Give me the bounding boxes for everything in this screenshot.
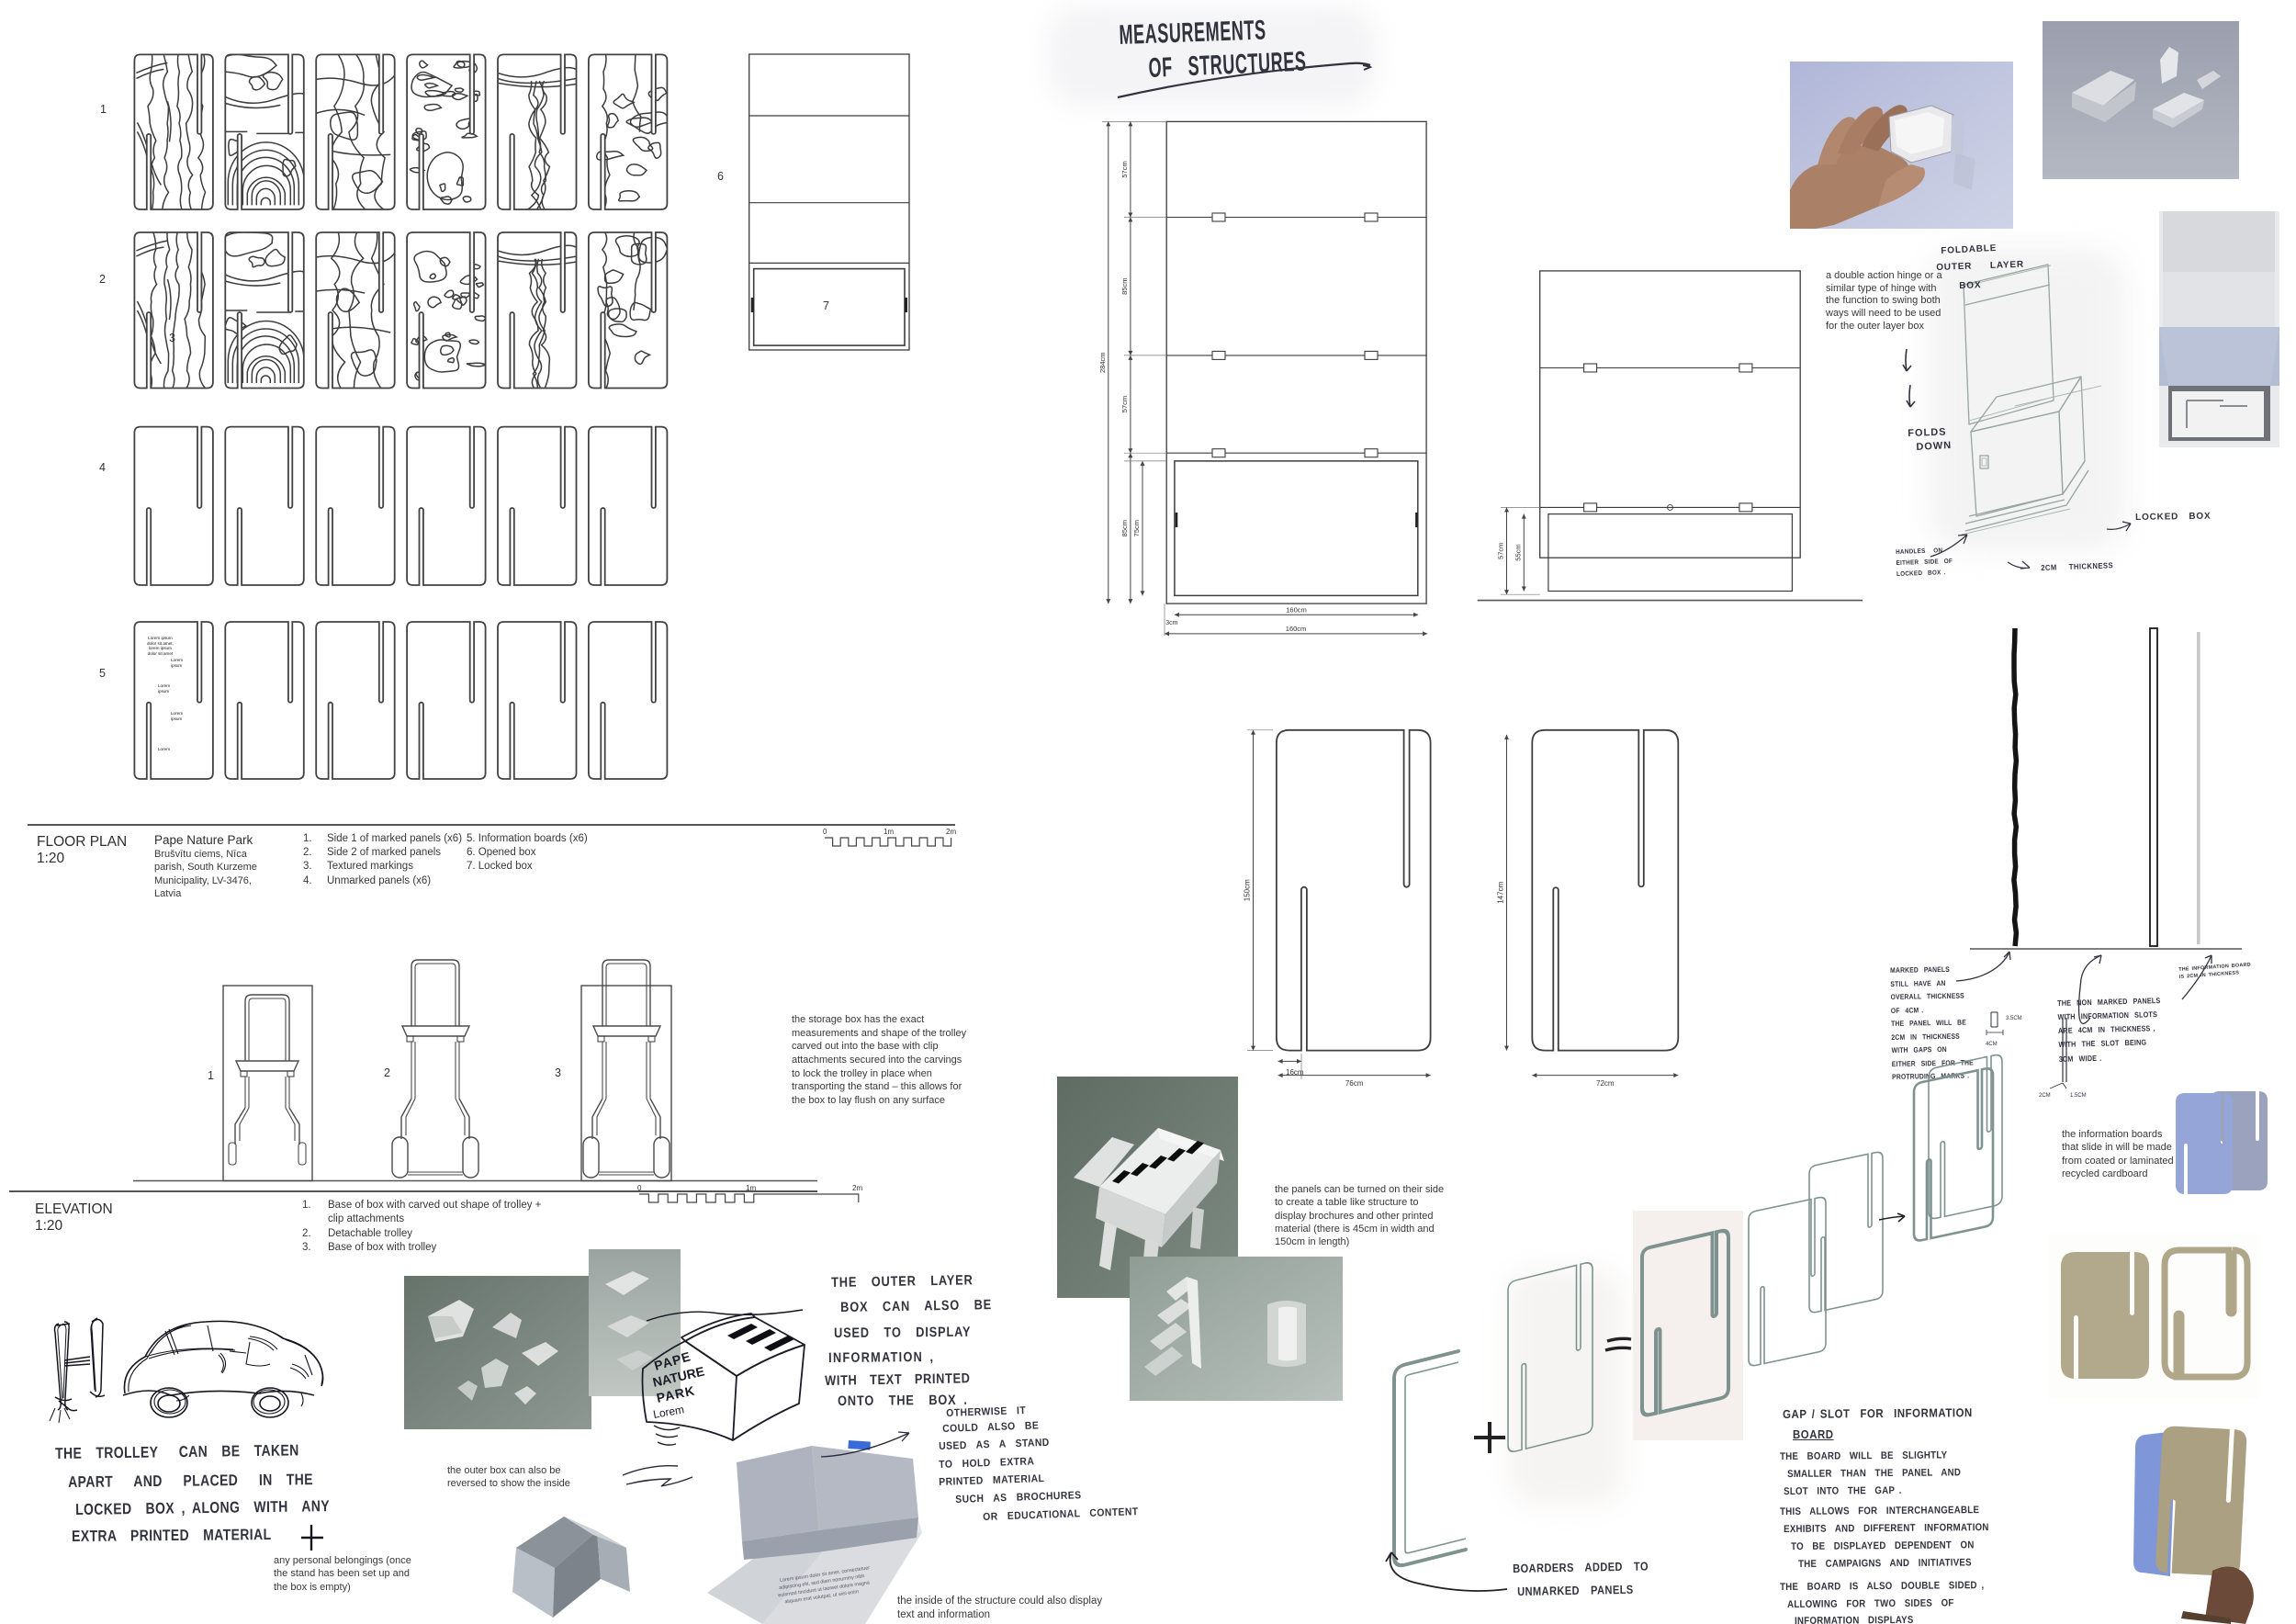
svg-text:57cm: 57cm: [1497, 543, 1505, 559]
svg-text:3.5CM: 3.5CM: [2006, 1016, 2022, 1021]
svg-text:2m: 2m: [852, 1184, 862, 1192]
svg-text:0: 0: [823, 828, 827, 836]
svg-text:55cm: 55cm: [1514, 544, 1522, 560]
svg-text:76cm: 76cm: [1345, 1079, 1364, 1088]
svg-text:0: 0: [637, 1184, 642, 1192]
svg-text:4CM: 4CM: [1986, 1042, 1998, 1047]
svg-text:85cm: 85cm: [1120, 278, 1129, 295]
svg-text:1m: 1m: [884, 828, 894, 836]
svg-text:284cm: 284cm: [1098, 352, 1107, 373]
svg-text:2m: 2m: [946, 828, 956, 836]
svg-text:150cm: 150cm: [1244, 879, 1252, 901]
svg-text:75cm: 75cm: [1132, 520, 1141, 536]
svg-text:57cm: 57cm: [1120, 396, 1129, 412]
svg-text:Lorem: Lorem: [652, 1403, 685, 1421]
svg-text:160cm: 160cm: [1286, 605, 1307, 614]
svg-text:3cm: 3cm: [1165, 620, 1177, 626]
svg-text:2CM: 2CM: [2039, 1093, 2051, 1099]
svg-text:72cm: 72cm: [1596, 1079, 1615, 1088]
svg-text:1m: 1m: [746, 1184, 756, 1192]
svg-text:57cm: 57cm: [1120, 161, 1129, 177]
svg-text:1.5CM: 1.5CM: [2070, 1093, 2087, 1099]
svg-text:147cm: 147cm: [1497, 881, 1505, 903]
svg-text:85cm: 85cm: [1120, 520, 1129, 536]
svg-text:160cm: 160cm: [1286, 625, 1307, 633]
